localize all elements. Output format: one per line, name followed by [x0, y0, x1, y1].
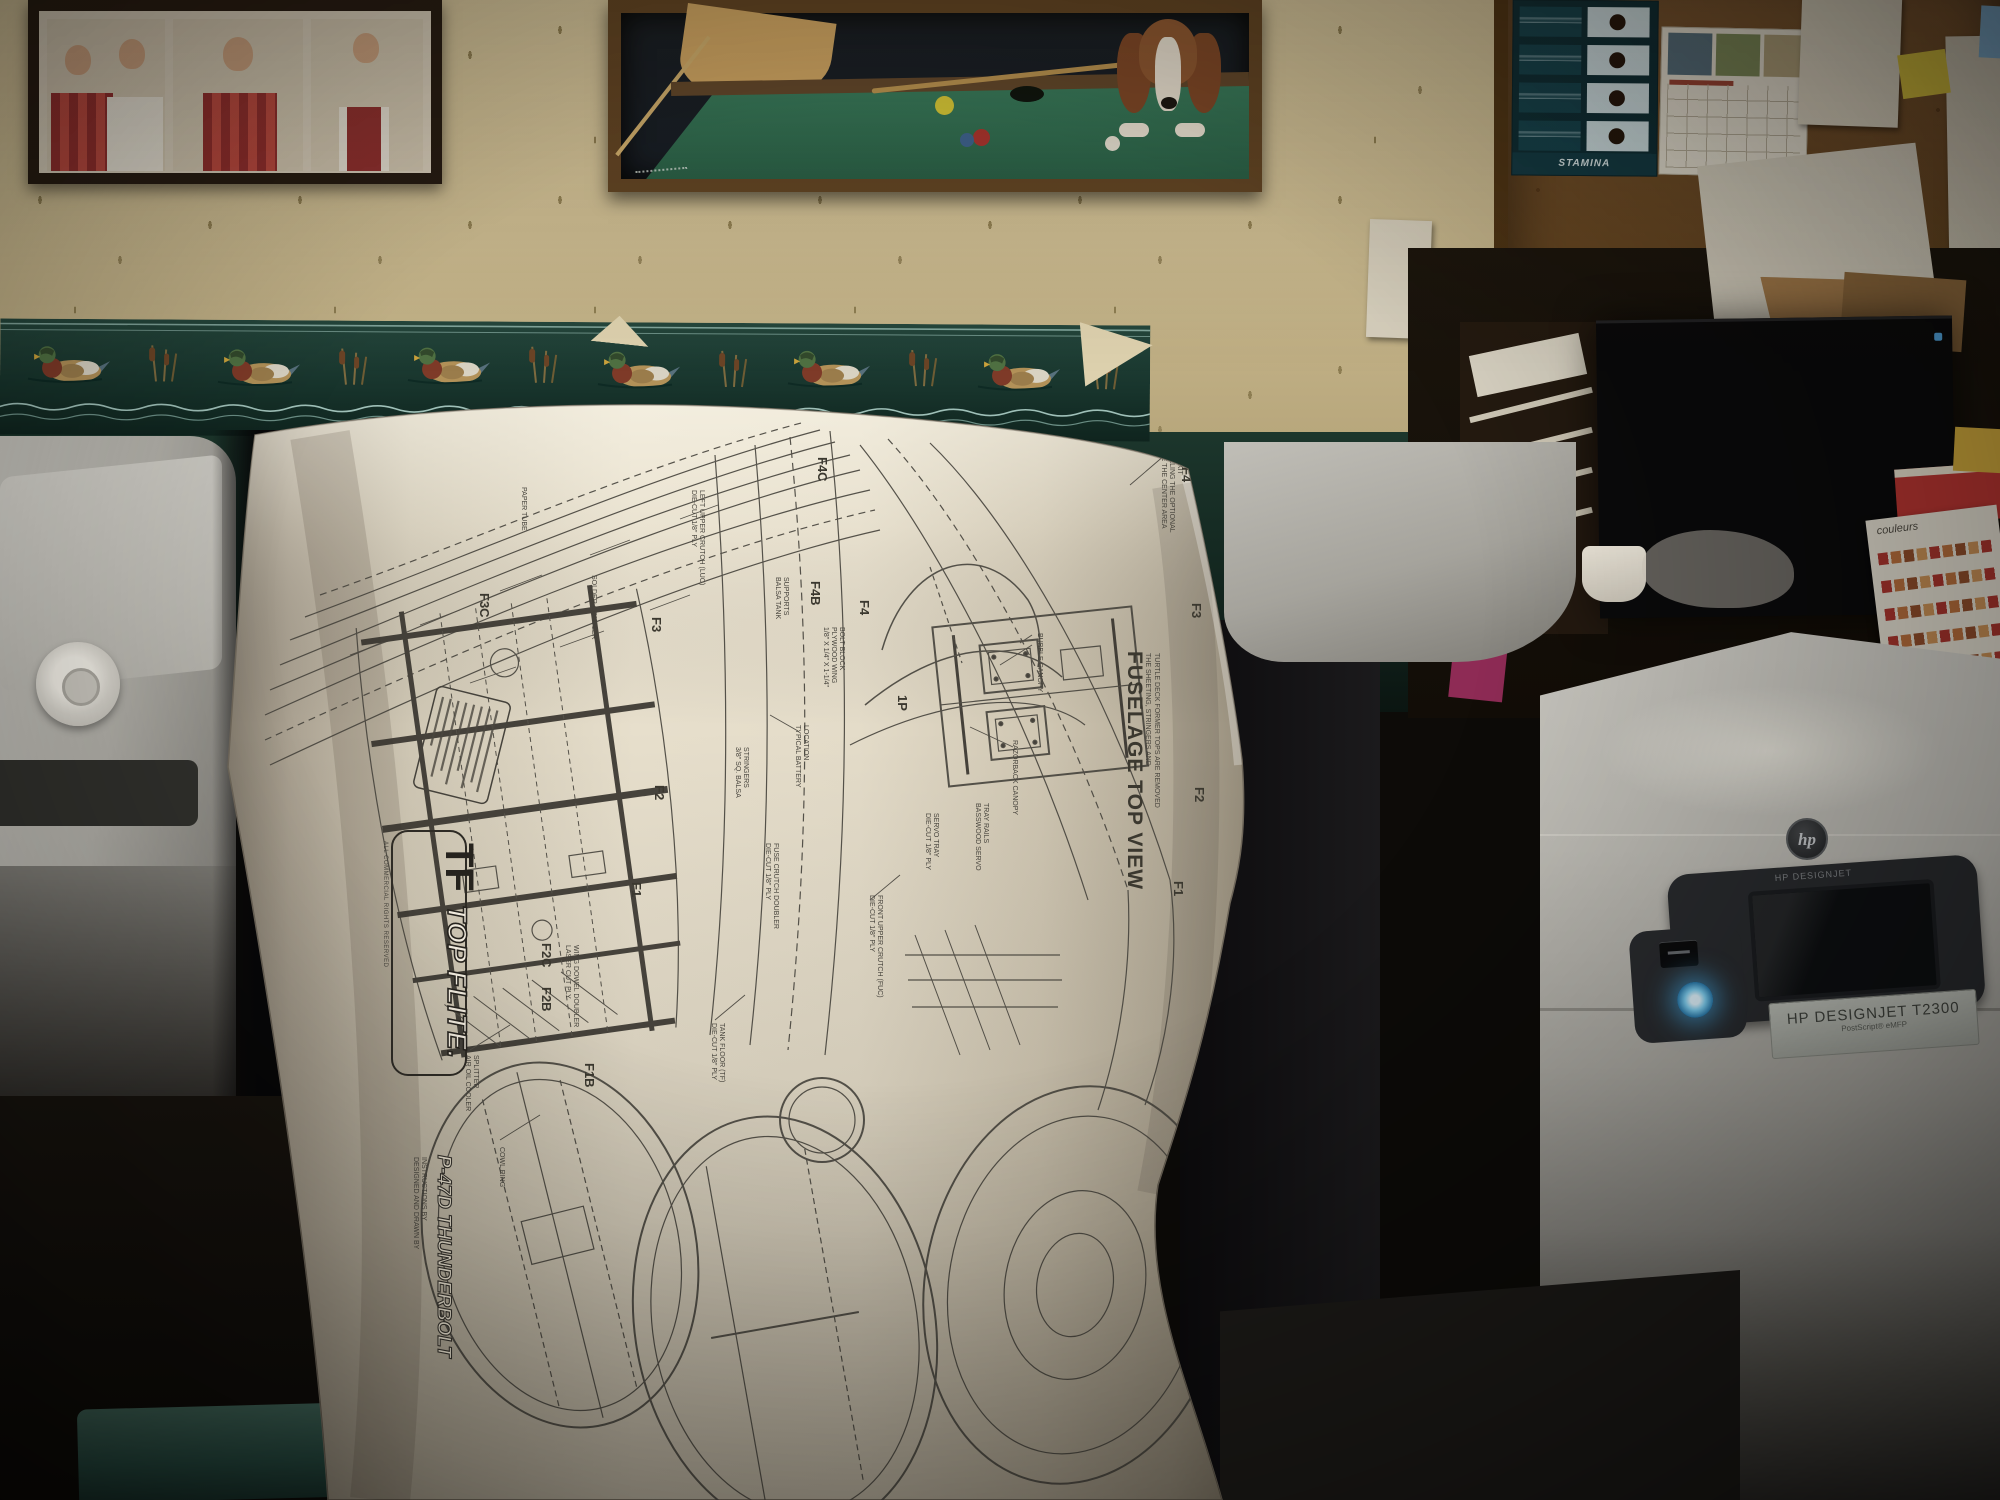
plan-callout: FRONT UPPER CRUTCH (FUC) — [876, 895, 883, 998]
plaid-shirt — [51, 93, 113, 171]
former-label: F4B — [808, 581, 823, 606]
person-head — [353, 33, 379, 63]
family-photo-left — [47, 19, 165, 171]
former-label: F4C — [815, 457, 830, 482]
plan-callout: DIE-CUT 1/8" PLY — [710, 1023, 717, 1080]
plan-callout: PAPER TUBE — [520, 487, 527, 531]
plan-callout: SERVO TRAY — [932, 813, 939, 858]
person-head — [119, 39, 145, 69]
dog-paw — [1119, 123, 1149, 137]
poster-brand-label: STAMINA — [1512, 152, 1656, 175]
plan-callout: TRAY RAILS — [982, 803, 989, 844]
poster-cell — [1518, 120, 1580, 151]
yellow-sticky-note — [1897, 49, 1951, 99]
former-label: F2 — [1192, 787, 1207, 802]
tf-monogram: TF — [437, 843, 481, 892]
basset-hound-face — [1117, 19, 1221, 139]
plan-callout: STRINGERS — [742, 747, 749, 788]
person-head — [223, 37, 253, 71]
poster-cell — [1587, 7, 1649, 38]
pinned-paper — [1798, 0, 1903, 128]
former-label: F3C — [477, 593, 492, 618]
yellow-box — [1953, 427, 2000, 474]
blue-tab — [1979, 5, 2000, 58]
plan-callout: IF INSTALLING THE OPTIONAL — [1168, 431, 1175, 533]
calendar-photo — [1716, 34, 1761, 77]
plan-callout: DIE-CUT 1/8" PLY — [690, 490, 697, 547]
plan-callout: DIE-CUT 1/8" PLY — [924, 813, 931, 870]
red-ball — [973, 129, 990, 146]
former-label: 1P — [895, 695, 910, 711]
room-photo: STAMINA — [0, 0, 2000, 1500]
rights-text: ALL COMMERCIAL RIGHTS RESERVED — [382, 841, 388, 968]
printer-seam — [1540, 834, 2000, 836]
dog-nose — [1161, 97, 1177, 109]
plan-callout: SOLDER COUPLER — [590, 575, 597, 640]
plan-callout: BASSWOOD SERVO — [974, 803, 981, 871]
poster-cell — [1519, 82, 1581, 113]
color-swatch-row — [1884, 595, 2000, 621]
left-printer-slot — [0, 760, 198, 826]
printed-plan-sheet: F4C F4B F4 F3C F3 1P F2C F2B F2 F1B F1 F… — [170, 395, 1330, 1500]
poster-cell — [1587, 45, 1649, 76]
plaid-shirt — [203, 93, 277, 171]
white-shirt — [107, 97, 163, 171]
poster-cell — [1519, 6, 1581, 37]
color-swatch-row — [1888, 623, 2000, 649]
plan-callout: SPLITTER — [472, 1055, 479, 1088]
red-vest — [339, 107, 389, 171]
light-reflection — [1600, 686, 1940, 816]
former-label: F1 — [629, 882, 644, 897]
hp-logo: hp — [1786, 818, 1828, 860]
model-credit: INSTRUCTIONS BY — [420, 1157, 427, 1221]
dog-paw — [1175, 123, 1205, 137]
calendar-photo — [1764, 35, 1805, 78]
plan-callout: WING DOWEL DOUBLER — [572, 945, 579, 1027]
plan-callout: LOCATION — [802, 725, 809, 760]
plan-callout: COCKPIT KIT — [1176, 431, 1183, 476]
poster-cell — [1587, 83, 1649, 114]
former-label: F1 — [1171, 881, 1186, 896]
family-photo-middle — [173, 19, 303, 171]
plan-callout: DIE-CUT 1/8" PLY — [868, 895, 875, 952]
former-label: F3 — [649, 617, 664, 632]
stamina-poster: STAMINA — [1511, 0, 1659, 177]
model-credit: DESIGNED AND DRAWN BY — [412, 1157, 419, 1250]
plan-callout: LASER CUT PLY — [564, 945, 571, 999]
plan-callout: DIE-CUT 1/8" PLY — [764, 843, 771, 900]
color-swatch-row — [1877, 539, 1994, 565]
poster-cell — [1586, 121, 1648, 152]
family-photo-right — [311, 19, 423, 171]
plan-callout: COWL RING — [498, 1147, 505, 1187]
plan-callout: FUSE CRUTCH DOUBLER — [772, 843, 779, 929]
monitor-power-led — [1934, 333, 1942, 341]
poster-cell — [1519, 44, 1581, 75]
former-label: F3 — [1189, 603, 1204, 618]
usb-port[interactable] — [1659, 940, 1699, 969]
envelope — [1469, 333, 1587, 397]
plan-callout: LEFT UPPER CRUTCH (LUC) — [698, 490, 705, 585]
chart-label: couleurs — [1876, 520, 1919, 537]
yellow-ball — [935, 96, 954, 115]
former-label: F2 — [652, 785, 667, 800]
plan-subtitle: THE SHEETING, STRINGERS AND — [1144, 653, 1151, 766]
former-label: F4 — [857, 600, 872, 616]
plan-callout: RAZORBACK CANOPY — [1011, 740, 1018, 815]
model-name: P-47D THUNDERBOLT — [433, 1155, 454, 1359]
color-swatch-row — [1881, 567, 1998, 593]
plan-callout: BALSA TANK — [774, 577, 781, 619]
former-label: F2C — [539, 943, 554, 968]
dogs-playing-pool-painting — [608, 0, 1262, 192]
plan-callout: BUBBLE CANOPY — [1036, 633, 1043, 692]
person-head — [65, 45, 91, 75]
white-cup — [1582, 546, 1646, 602]
former-label: F2B — [539, 987, 554, 1012]
former-label: F1B — [582, 1063, 597, 1088]
roll-spindle-knob — [36, 642, 120, 726]
plan-callout: 1/8" X 1/4" X 1-1/4" — [822, 627, 829, 688]
wall-calendar — [1658, 26, 1809, 177]
plan-callout: SUPPORTS — [782, 577, 789, 616]
plan-callout: TYPICAL BATTERY — [794, 725, 801, 788]
plan-callout: TANK FLOOR (TF) — [718, 1023, 725, 1082]
plan-callout: 3/8" SQ. BALSA — [734, 747, 741, 798]
framed-family-photos — [28, 0, 442, 184]
top-flite-wordmark: TOP FLITE. — [442, 905, 472, 1059]
plan-callout: BOLT BLOCK — [838, 627, 845, 671]
plan-title: FUSELAGE TOP VIEW — [1123, 651, 1146, 890]
plan-callout: REMOVE THE CENTER AREA — [1160, 431, 1167, 529]
plan-callout: PLYWOOD WING — [830, 627, 837, 683]
calendar-photo — [1668, 33, 1713, 76]
plan-subtitle: TURTLE DECK FORMER TOPS ARE REMOVED — [1153, 653, 1160, 808]
blue-ball — [960, 133, 974, 147]
printer-touchscreen[interactable] — [1748, 879, 1941, 1002]
